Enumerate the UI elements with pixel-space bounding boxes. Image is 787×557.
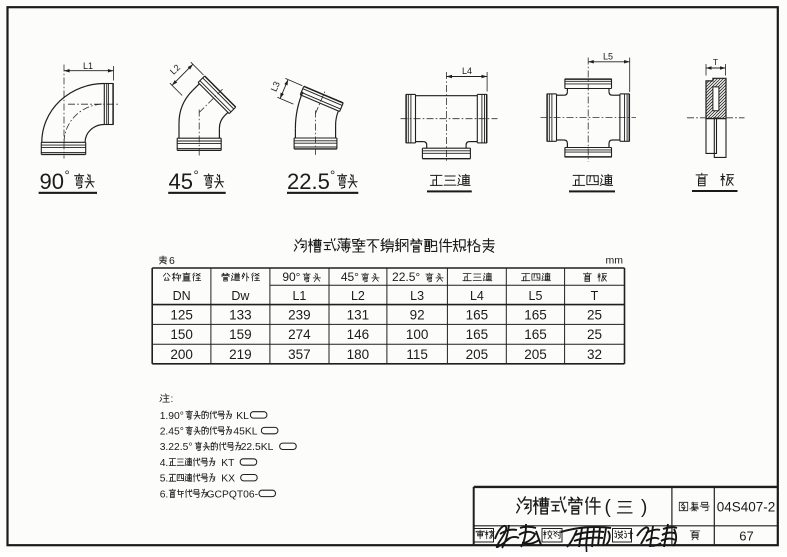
svg-text:274: 274 bbox=[288, 327, 311, 342]
svg-text:90: 90 bbox=[40, 169, 64, 194]
svg-text:200: 200 bbox=[170, 347, 193, 362]
svg-text:25: 25 bbox=[587, 327, 602, 342]
svg-text:°: ° bbox=[330, 168, 335, 183]
svg-text:45°: 45° bbox=[341, 270, 359, 284]
svg-text:L4: L4 bbox=[462, 66, 472, 76]
svg-text:L1: L1 bbox=[83, 61, 93, 71]
svg-text:6: 6 bbox=[169, 255, 175, 267]
svg-text:357: 357 bbox=[288, 347, 311, 362]
svg-text:150: 150 bbox=[170, 327, 193, 342]
svg-text:219: 219 bbox=[229, 347, 252, 362]
svg-text:180: 180 bbox=[347, 347, 370, 362]
svg-text:KT: KT bbox=[221, 458, 235, 469]
svg-text:90°: 90° bbox=[282, 270, 300, 284]
svg-text:T: T bbox=[591, 289, 599, 303]
svg-text::: : bbox=[171, 394, 174, 405]
svg-text:): ) bbox=[641, 497, 647, 518]
svg-text:125: 125 bbox=[170, 307, 193, 322]
svg-text:3.22.5°: 3.22.5° bbox=[160, 442, 193, 453]
svg-text:165: 165 bbox=[466, 307, 489, 322]
svg-text:2.45°: 2.45° bbox=[160, 427, 184, 438]
svg-text:°: ° bbox=[194, 168, 199, 183]
svg-text:KX: KX bbox=[221, 474, 235, 485]
svg-text:25: 25 bbox=[587, 307, 602, 322]
svg-text:159: 159 bbox=[229, 327, 252, 342]
svg-text:100: 100 bbox=[406, 327, 429, 342]
svg-text:04S407-2: 04S407-2 bbox=[717, 500, 776, 515]
svg-text:131: 131 bbox=[347, 307, 370, 322]
svg-text:146: 146 bbox=[347, 327, 370, 342]
svg-text:165: 165 bbox=[466, 327, 489, 342]
svg-text:KL: KL bbox=[236, 411, 249, 422]
svg-text:92: 92 bbox=[410, 307, 425, 322]
svg-text:L5: L5 bbox=[529, 289, 543, 303]
svg-text:22.5KL: 22.5KL bbox=[241, 442, 274, 453]
svg-text:32: 32 bbox=[587, 347, 602, 362]
svg-text:5.: 5. bbox=[160, 474, 169, 485]
svg-text:(: ( bbox=[605, 497, 612, 518]
svg-text:6.: 6. bbox=[160, 489, 169, 500]
svg-text:T: T bbox=[713, 57, 718, 67]
svg-text:22.5°: 22.5° bbox=[392, 270, 420, 284]
svg-text:45: 45 bbox=[169, 169, 193, 194]
svg-text:L1: L1 bbox=[292, 289, 306, 303]
svg-text:165: 165 bbox=[524, 307, 547, 322]
svg-text:4.: 4. bbox=[160, 458, 169, 469]
svg-text:239: 239 bbox=[288, 307, 311, 322]
svg-text:1.90°: 1.90° bbox=[160, 411, 184, 422]
svg-text:L4: L4 bbox=[470, 289, 484, 303]
svg-text:GCPQT06-: GCPQT06- bbox=[207, 489, 259, 500]
svg-text:DN: DN bbox=[173, 289, 191, 303]
svg-text:205: 205 bbox=[466, 347, 489, 362]
svg-text:22.5: 22.5 bbox=[287, 169, 330, 194]
svg-text:165: 165 bbox=[524, 327, 547, 342]
svg-text:°: ° bbox=[65, 168, 70, 183]
svg-text:L3: L3 bbox=[410, 289, 424, 303]
svg-text:mm: mm bbox=[606, 255, 624, 267]
svg-text:205: 205 bbox=[524, 347, 547, 362]
svg-text:L2: L2 bbox=[351, 289, 365, 303]
svg-text:67: 67 bbox=[739, 529, 753, 544]
svg-text:45KL: 45KL bbox=[233, 427, 257, 438]
svg-text:L5: L5 bbox=[603, 52, 613, 62]
svg-text:115: 115 bbox=[406, 347, 428, 362]
svg-text:133: 133 bbox=[229, 307, 252, 322]
svg-text:Dw: Dw bbox=[231, 289, 250, 303]
